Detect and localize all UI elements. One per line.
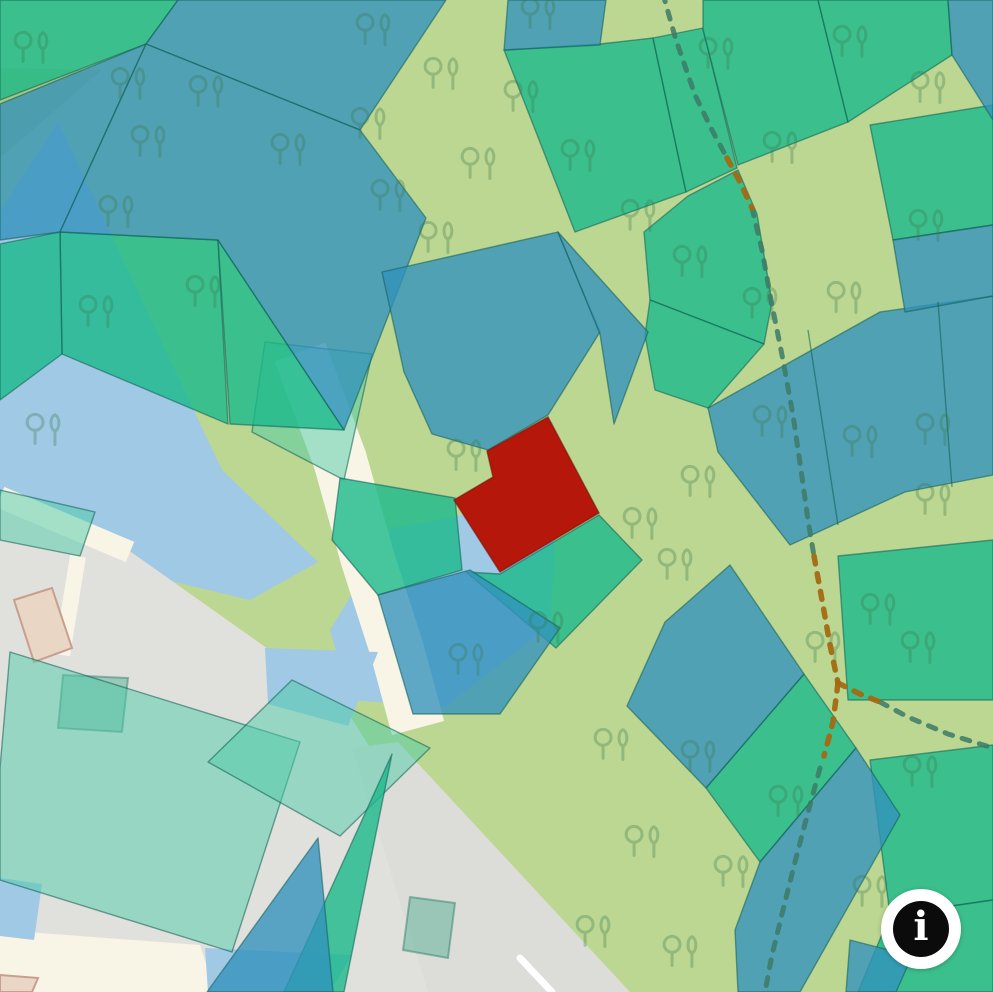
parcel-green — [870, 105, 993, 240]
map-viewport: i — [0, 0, 993, 992]
building — [403, 897, 455, 958]
building — [0, 975, 38, 992]
parcel-green — [838, 540, 993, 700]
map-canvas[interactable] — [0, 0, 993, 992]
parcel-blue — [893, 225, 993, 312]
info-icon: i — [893, 901, 949, 957]
info-button[interactable]: i — [881, 889, 961, 969]
